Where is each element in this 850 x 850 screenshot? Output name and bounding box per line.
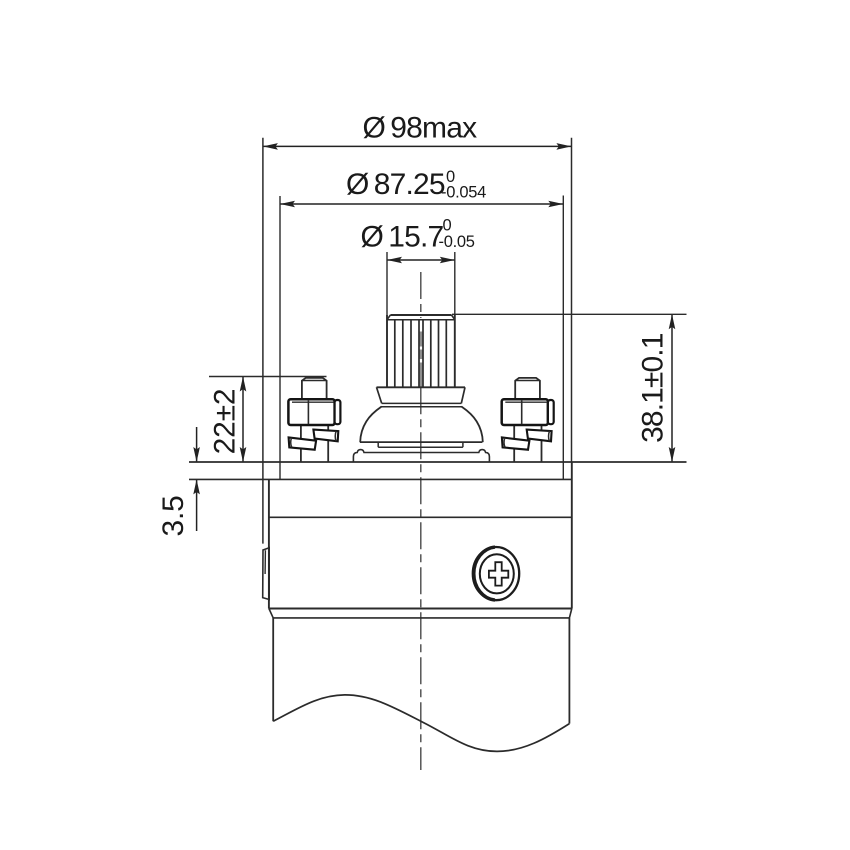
svg-text:22±2: 22±2	[209, 389, 242, 455]
svg-text:-0.054: -0.054	[441, 184, 486, 202]
svg-text:Ø 87.25: Ø 87.25	[346, 168, 445, 201]
svg-text:-0.05: -0.05	[439, 233, 475, 251]
svg-text:Ø 15.7: Ø 15.7	[361, 221, 444, 254]
svg-text:38.1±0.1: 38.1±0.1	[637, 333, 670, 443]
svg-text:0: 0	[443, 217, 452, 235]
svg-text:3.5: 3.5	[157, 495, 190, 536]
svg-text:Ø 98max: Ø 98max	[363, 112, 478, 145]
